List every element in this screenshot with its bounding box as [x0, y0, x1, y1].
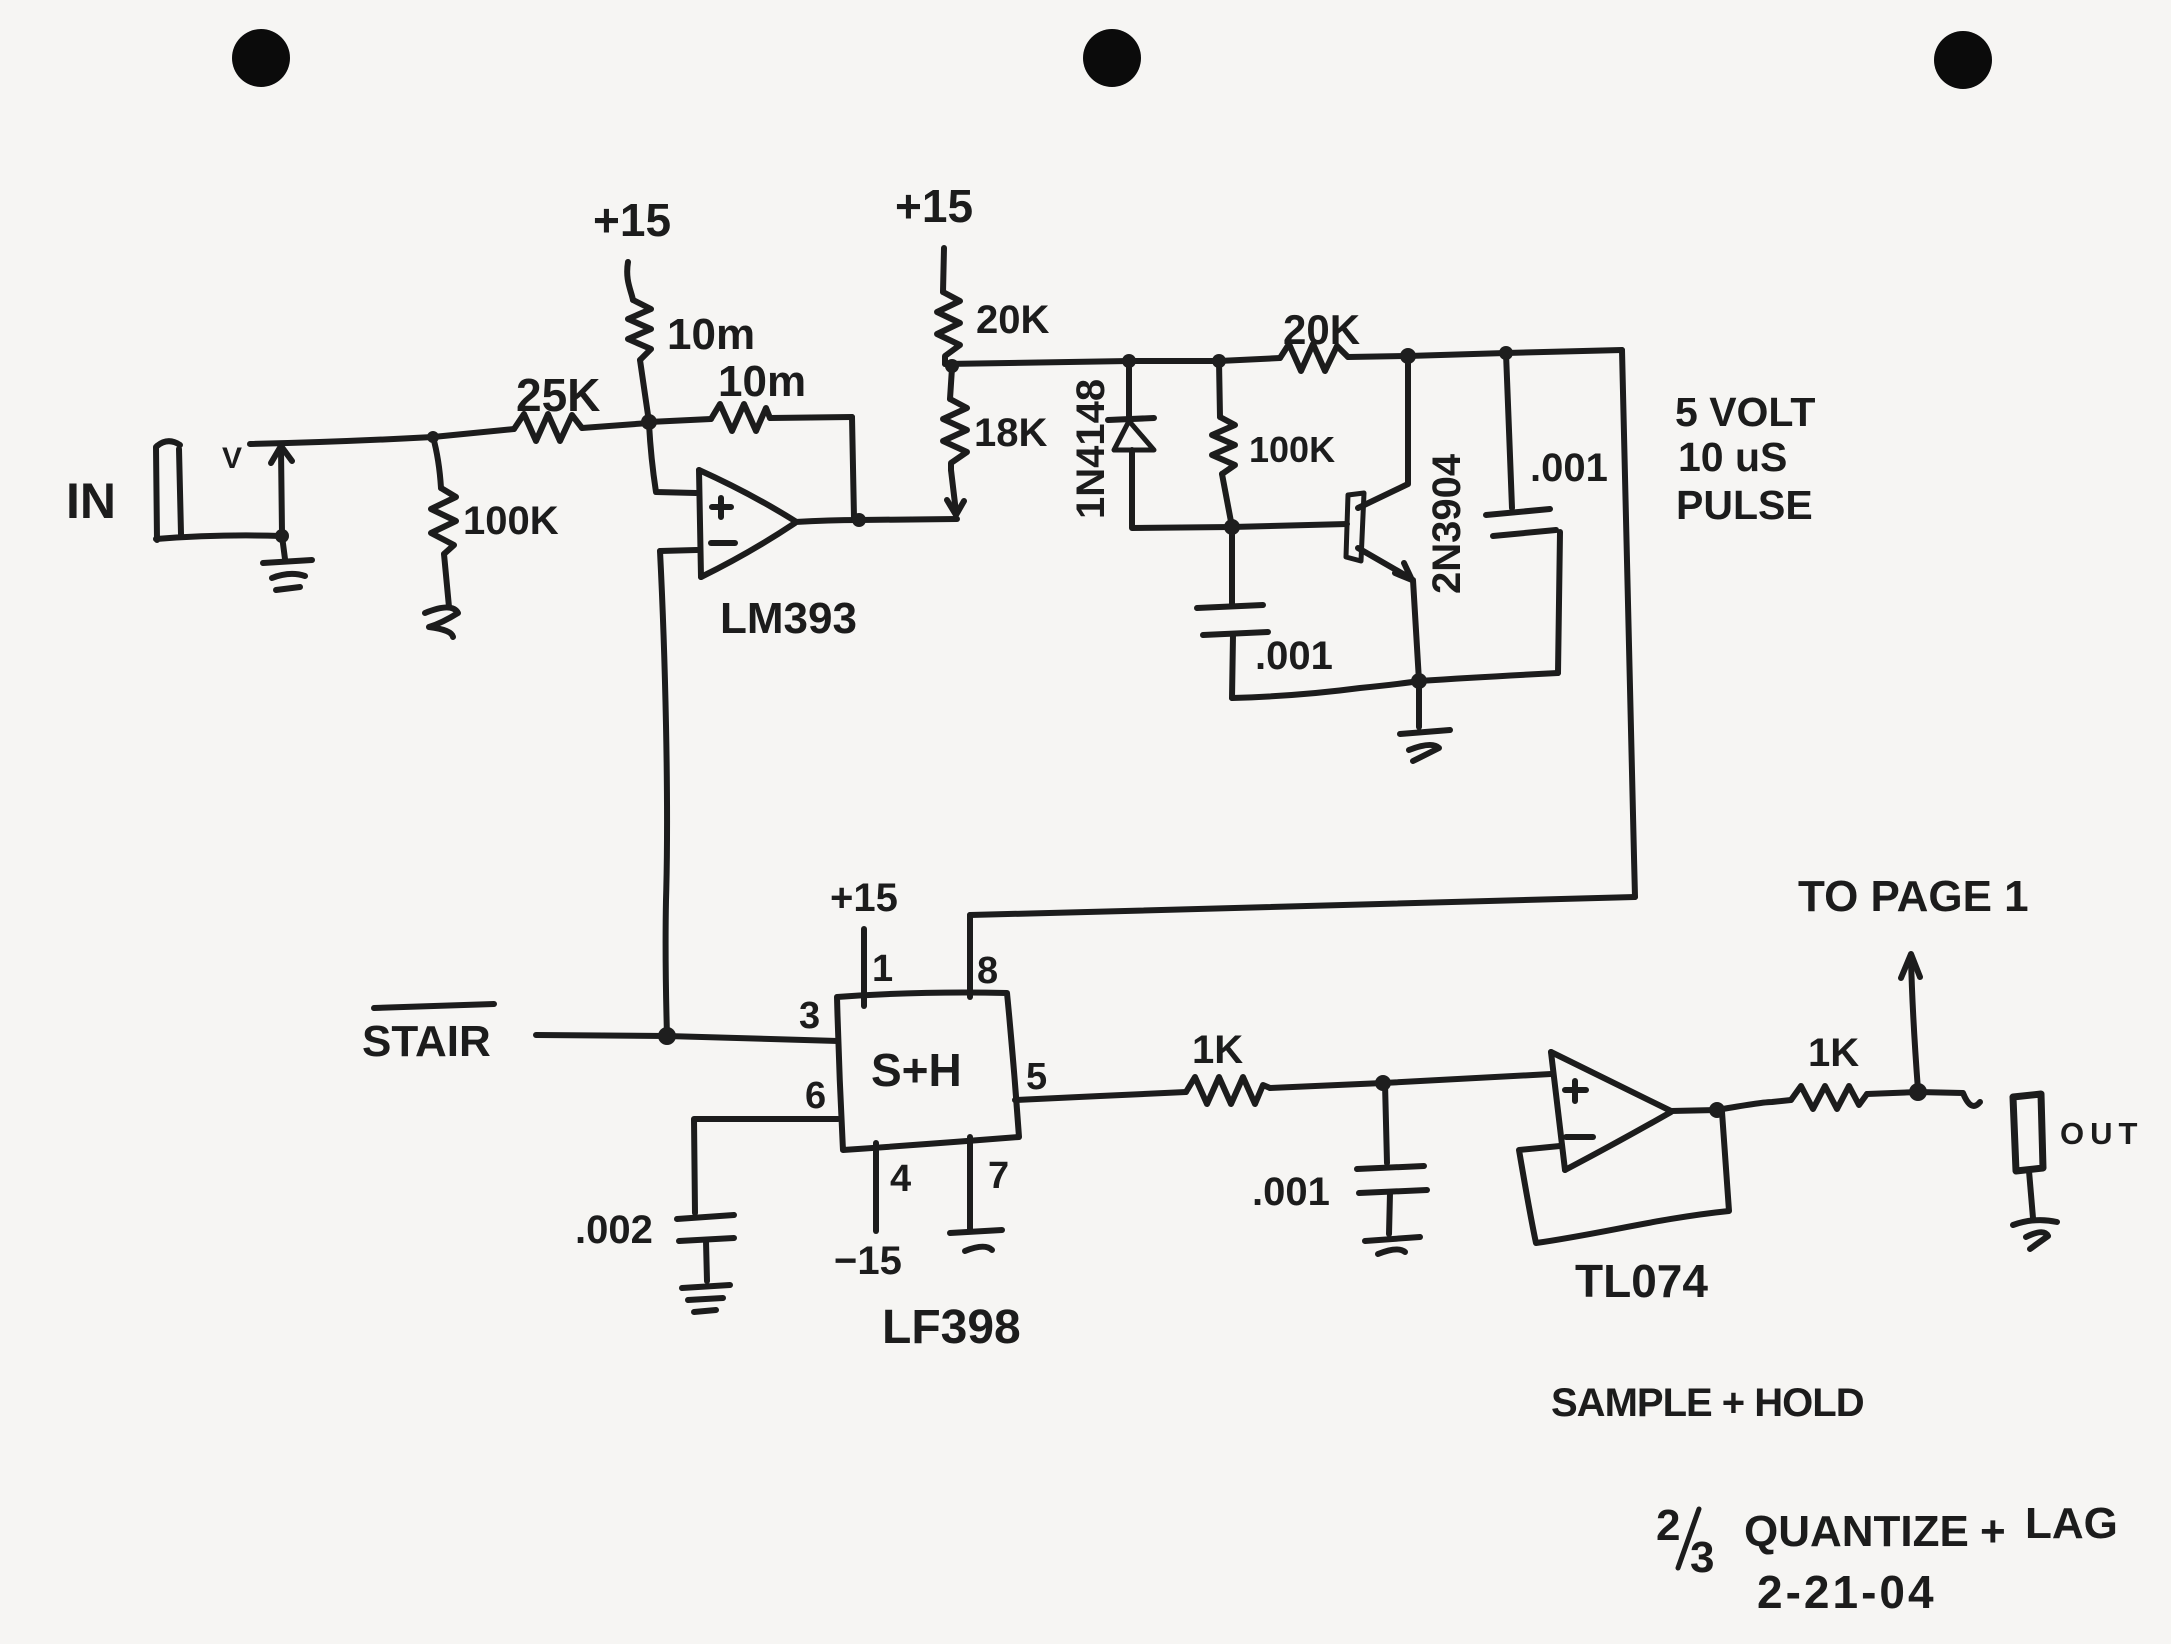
svg-text:1K: 1K	[1808, 1031, 1859, 1075]
svg-text:+15: +15	[895, 180, 973, 232]
svg-text:100K: 100K	[463, 499, 559, 543]
svg-text:+15: +15	[593, 194, 671, 246]
svg-text:3: 3	[799, 995, 820, 1037]
svg-text:+: +	[1980, 1507, 2006, 1556]
svg-text:1K: 1K	[1192, 1028, 1243, 1072]
svg-text:1N4148: 1N4148	[1069, 379, 1113, 519]
svg-text:7: 7	[988, 1155, 1009, 1197]
svg-text:V: V	[222, 442, 242, 475]
svg-text:LM393: LM393	[720, 594, 857, 643]
svg-text:LAG: LAG	[2025, 1499, 2118, 1548]
svg-text:TO PAGE 1: TO PAGE 1	[1798, 872, 2029, 921]
svg-text:100K: 100K	[1249, 429, 1335, 470]
svg-text:STAIR: STAIR	[362, 1017, 491, 1066]
svg-text:20K: 20K	[976, 298, 1049, 342]
svg-text:4: 4	[890, 1158, 911, 1200]
svg-text:10m: 10m	[667, 310, 755, 359]
svg-text:IN: IN	[66, 473, 116, 529]
svg-text:25K: 25K	[516, 369, 600, 421]
svg-text:18K: 18K	[974, 411, 1047, 455]
svg-text:6: 6	[805, 1075, 826, 1117]
svg-text:S+H: S+H	[871, 1044, 962, 1096]
svg-text:PULSE: PULSE	[1676, 482, 1813, 528]
svg-text:.002: .002	[575, 1208, 653, 1252]
svg-text:SAMPLE + HOLD: SAMPLE + HOLD	[1551, 1381, 1864, 1425]
svg-text:.001: .001	[1530, 446, 1608, 490]
svg-text:2-21-04: 2-21-04	[1757, 1566, 1937, 1618]
svg-text:10m: 10m	[718, 357, 806, 406]
svg-text:+15: +15	[830, 876, 898, 920]
svg-text:5: 5	[1026, 1056, 1047, 1098]
svg-text:2N3904: 2N3904	[1425, 453, 1469, 594]
svg-text:10 uS: 10 uS	[1678, 434, 1787, 480]
svg-text:QUANTIZE: QUANTIZE	[1744, 1507, 1969, 1556]
svg-text:.001: .001	[1255, 634, 1333, 678]
svg-text:.001: .001	[1252, 1170, 1330, 1214]
svg-text:20K: 20K	[1283, 306, 1360, 353]
svg-text:1: 1	[872, 948, 893, 990]
svg-text:3: 3	[1690, 1533, 1714, 1582]
svg-text:LF398: LF398	[882, 1301, 1021, 1354]
svg-text:8: 8	[977, 950, 998, 992]
svg-text:2: 2	[1656, 1501, 1680, 1550]
svg-text:−15: −15	[834, 1239, 902, 1283]
svg-text:5 VOLT: 5 VOLT	[1675, 389, 1815, 435]
svg-text:OUT: OUT	[2060, 1116, 2143, 1151]
svg-text:TL074: TL074	[1575, 1255, 1708, 1307]
